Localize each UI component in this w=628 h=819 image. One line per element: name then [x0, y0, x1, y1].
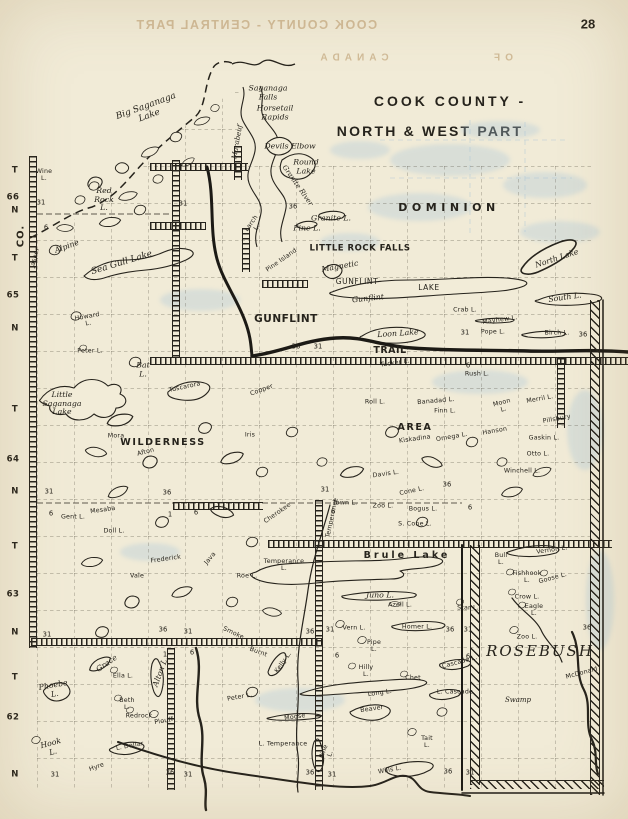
atlas-page: COOK COUNTY - CENTRAL PART CANADA OF 28 … [0, 0, 628, 819]
map-drawing [0, 0, 628, 819]
